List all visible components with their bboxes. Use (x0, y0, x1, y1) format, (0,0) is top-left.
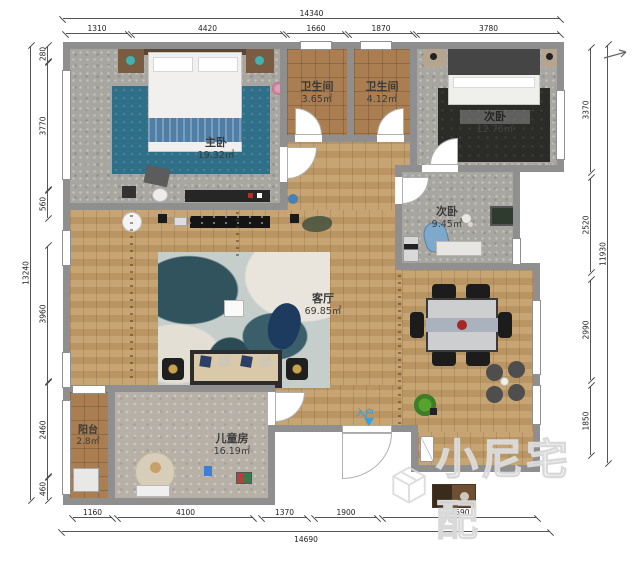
wall-bath-right (410, 42, 417, 172)
dim-left-seg-6: 460 (47, 477, 48, 500)
label-bedroom-3: 次卧 9.45㎡ (412, 205, 482, 232)
window-master-left (62, 70, 71, 180)
shoe-cabinet-dark-half (433, 485, 452, 507)
master-pillow-right (198, 57, 238, 72)
label-master-name: 主卧 (180, 136, 252, 150)
outdoor-shoe-cabinet (432, 484, 476, 508)
dim-top-total-value: 14340 (300, 9, 324, 18)
master-round-tray (152, 188, 168, 202)
dim-bottom-total: 14690 (62, 531, 550, 532)
master-small-box (122, 186, 136, 198)
dim-bottom-seg4-value: 1900 (336, 508, 355, 517)
dim-bottom-seg2-value: 4100 (176, 508, 195, 517)
dim-left-seg-4: 3960 (47, 246, 48, 382)
dim-left-seg2-value: 3770 (39, 116, 48, 135)
sofa-pillow-3 (240, 355, 253, 368)
dim-right-seg2-value: 2520 (582, 215, 591, 234)
label-balcony-name: 阳台 (66, 424, 110, 437)
label-balcony-area: 2.8㎡ (66, 437, 110, 449)
side-table-left (162, 358, 184, 380)
dim-left-seg1-value: 280 (39, 47, 48, 61)
bottom-right-hall-floor (418, 432, 533, 465)
dim-bottom-total-value: 14690 (294, 535, 318, 544)
bedroom2-lamp-right (546, 53, 553, 60)
dim-top-seg-1: 1310 (66, 33, 128, 34)
curtain-speckle-left (130, 215, 133, 383)
dim-left-seg-2: 3770 (47, 62, 48, 190)
sofa-pillow-2 (218, 355, 230, 367)
kids-teddy (150, 462, 161, 473)
master-console-dot-white (257, 193, 262, 198)
dim-bottom-seg-1: 1160 (73, 517, 112, 518)
dim-bottom-seg-4: 1900 (315, 517, 377, 518)
dim-top-seg-3: 1660 (287, 33, 345, 34)
tv-speaker-right (290, 214, 299, 223)
label-living-room: 客厅 69.85㎡ (288, 292, 358, 319)
dim-left-total: 13240 (30, 46, 31, 500)
side-table-right (286, 358, 308, 380)
dining-chair-right (498, 312, 512, 338)
shoe-cabinet-bowl-icon (460, 492, 469, 501)
media-box (174, 217, 187, 226)
tea-stool-4 (508, 384, 525, 401)
label-kids-name: 儿童房 (196, 432, 268, 446)
dining-chair-left (410, 312, 424, 338)
dim-top-seg-2: 4420 (132, 33, 283, 34)
label-living-area: 69.85㎡ (288, 306, 358, 318)
dim-bottom-seg-2: 4100 (118, 517, 253, 518)
label-bedroom2-area: 12.76㎡ (460, 124, 530, 136)
label-living-name: 客厅 (288, 292, 358, 306)
tea-table-dish (500, 377, 509, 386)
dim-bottom-seg3-value: 1370 (275, 508, 294, 517)
label-bedroom3-name: 次卧 (412, 205, 482, 219)
tea-stool-2 (508, 361, 525, 378)
entry-door-arc (342, 433, 392, 479)
label-bathroom-2: 卫生间 4.12㎡ (352, 80, 412, 107)
window-bath1-top (300, 41, 332, 50)
label-master-area: 19.32㎡ (180, 150, 252, 162)
dim-left-seg4-value: 3960 (39, 304, 48, 323)
dim-bottom-seg-5: 4590 (383, 517, 537, 518)
wall-bath-bottom-c (404, 135, 417, 142)
dining-chair-bottom-2 (466, 350, 490, 366)
dim-right-seg4-value: 1850 (582, 411, 591, 430)
wall-bottom-left (63, 498, 275, 505)
dining-chair-bottom-1 (432, 350, 456, 366)
dim-bottom-seg-3: 1370 (262, 517, 307, 518)
dim-left-seg6-value: 460 (39, 481, 48, 495)
wall-master-bottom (63, 203, 287, 210)
wall-bath-bottom-a (287, 135, 295, 142)
balcony-door (72, 385, 106, 394)
label-bedroom3-area: 9.45㎡ (412, 219, 482, 231)
window-bedroom3-right (512, 238, 521, 265)
wall-bedroom2-bottom-b (458, 165, 564, 172)
dim-top-seg3-value: 1660 (306, 24, 325, 33)
label-bathroom-1: 卫生间 3.65㎡ (287, 80, 347, 107)
bedroom2-blanket (448, 49, 540, 75)
master-lamp-left (126, 56, 135, 65)
floor-plan-canvas: 主卧 19.32㎡ 卫生间 3.65㎡ 卫生间 4.12㎡ 次卧 12.76㎡ … (0, 0, 640, 579)
wall-bedroom3-left-a (395, 165, 402, 177)
corridor-speckle (398, 275, 401, 425)
wall-bath-bottom-b (322, 135, 377, 142)
entry-marker-arrow-icon (364, 418, 374, 431)
bedroom2-pillow (453, 77, 535, 88)
dim-left-total-value: 13240 (22, 261, 31, 285)
dim-left-seg-3: 560 (47, 190, 48, 218)
dim-right-seg-3: 2990 (590, 280, 591, 380)
dim-right-seg-1: 3370 (590, 48, 591, 172)
dim-left-seg3-value: 560 (39, 197, 48, 211)
window-living-left-1 (62, 230, 71, 266)
dining-centerpiece (457, 320, 467, 330)
kids-blue-toy (204, 466, 212, 476)
window-dining-right-2 (532, 385, 541, 425)
label-bedroom2-name: 次卧 (460, 110, 530, 124)
dim-top-seg1-value: 1310 (87, 24, 106, 33)
balcony-appliance (73, 468, 99, 492)
bedroom2-lamp-left (430, 53, 437, 60)
sofa-pillow-1 (199, 355, 211, 367)
tv-unit (190, 216, 270, 228)
dim-right-seg3-value: 2990 (582, 320, 591, 339)
dim-top-seg5-value: 3780 (479, 24, 498, 33)
dim-right-total-value: 11930 (599, 242, 608, 266)
label-bath2-name: 卫生间 (352, 80, 412, 94)
dim-bottom-seg5-value: 4590 (450, 508, 469, 517)
wall-bottom-right (411, 465, 540, 472)
dim-top-seg-5: 3780 (417, 33, 560, 34)
wall-master-right-upper (280, 42, 287, 147)
label-kids-area: 16.19㎡ (196, 446, 268, 458)
master-console-dot-red (248, 193, 253, 198)
dim-top-total: 14340 (63, 18, 560, 19)
label-bath1-name: 卫生间 (287, 80, 347, 94)
dim-bottom-seg1-value: 1160 (83, 508, 102, 517)
kids-desk (136, 485, 170, 497)
master-pillow-left (153, 57, 193, 72)
dim-right-total: 11930 (607, 45, 608, 463)
dim-left-seg5-value: 2460 (39, 420, 48, 439)
kids-toy-box (236, 472, 252, 484)
dim-top-seg4-value: 1870 (371, 24, 390, 33)
label-bedroom-2: 次卧 12.76㎡ (460, 110, 530, 137)
dim-left-seg-5: 2460 (47, 382, 48, 477)
coffee-table (224, 300, 244, 317)
north-arrow-icon (602, 44, 632, 64)
window-bedroom2-right (556, 90, 565, 160)
plant-pot (430, 408, 437, 415)
label-kids-room: 儿童房 16.19㎡ (196, 432, 268, 459)
label-bath1-area: 3.65㎡ (287, 94, 347, 106)
window-bath2-top (360, 41, 392, 50)
hall-blue-item (288, 194, 298, 204)
label-bath2-area: 4.12㎡ (352, 94, 412, 106)
dim-right-seg-4: 1850 (590, 386, 591, 455)
window-dining-right-1 (532, 300, 541, 375)
dim-top-seg-4: 1870 (349, 33, 413, 34)
wall-entry-bottom-b (392, 425, 418, 432)
bedroom3-cabinet (403, 236, 419, 262)
curtain-speckle-mid (236, 212, 239, 258)
wall-entry-bottom-a (268, 425, 342, 432)
master-lamp-right (255, 56, 264, 65)
wall-bedroom2-bottom-a (402, 165, 422, 172)
bedroom3-desk (436, 241, 482, 256)
dim-right-seg-2: 2520 (590, 178, 591, 272)
tea-stool-3 (486, 386, 503, 403)
label-balcony: 阳台 2.8㎡ (66, 424, 110, 449)
shoe-cabinet-door (420, 436, 434, 462)
tv-speaker-left (158, 214, 167, 223)
dim-top-seg2-value: 4420 (198, 24, 217, 33)
sofa-pillow-4 (259, 355, 271, 367)
wall-bedroom3-left-b (395, 204, 402, 270)
window-living-left-2 (62, 352, 71, 388)
wall-kids-right (268, 425, 275, 505)
dim-right-seg1-value: 3370 (582, 100, 591, 119)
label-master-bedroom: 主卧 19.32㎡ (180, 136, 252, 163)
wall-entry-right (411, 432, 418, 472)
